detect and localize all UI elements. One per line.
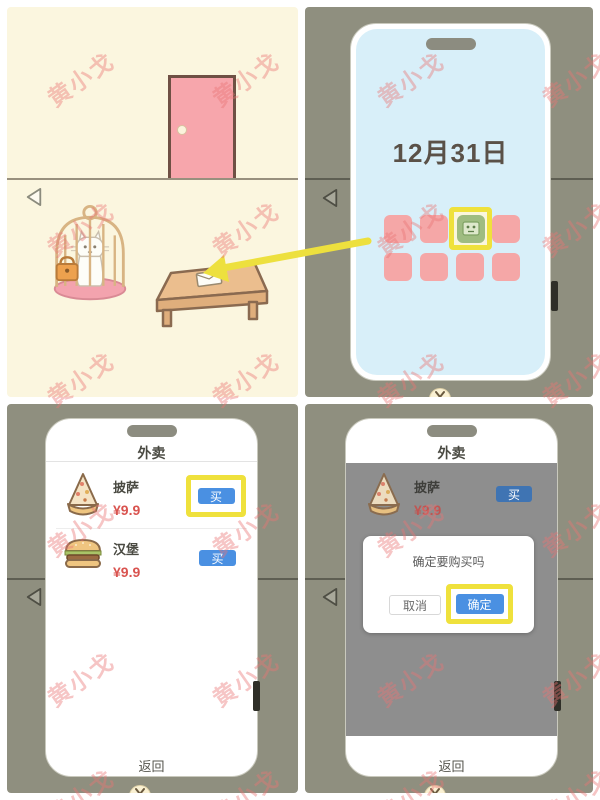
takeout-app-icon[interactable]	[457, 215, 485, 243]
note-icon[interactable]	[196, 270, 222, 286]
highlight-box	[449, 207, 492, 250]
chevron-down-icon	[427, 786, 443, 793]
table[interactable]	[143, 247, 295, 332]
buy-button[interactable]: 买	[496, 486, 532, 502]
phone-notch	[427, 425, 477, 437]
item-price: ¥9.9	[113, 502, 140, 518]
phone-side-button	[253, 681, 260, 711]
app-icon[interactable]	[384, 215, 412, 243]
phone: 12月31日	[350, 23, 551, 381]
app-icon[interactable]	[420, 253, 448, 281]
door-knob-icon	[177, 125, 187, 135]
confirm-button[interactable]: 确定	[456, 594, 504, 614]
dialog-message: 确定要购买吗	[363, 553, 534, 570]
chevron-down-icon	[132, 786, 148, 793]
highlight-box: 确定	[446, 584, 513, 624]
phone-side-button	[551, 281, 558, 311]
app-title: 外卖	[46, 443, 257, 463]
date-text: 12月31日	[356, 133, 545, 170]
item-name: 披萨	[414, 477, 440, 496]
burger-icon	[62, 536, 104, 570]
app-icon[interactable]	[456, 253, 484, 281]
app-icon[interactable]	[492, 253, 520, 281]
divider	[46, 461, 257, 462]
app-title: 外卖	[346, 443, 557, 463]
confirm-dialog: 确定要购买吗 取消 确定	[363, 536, 534, 633]
walkthrough-collage: 12月31日	[0, 0, 600, 800]
panel-shop: 外卖 披萨 ¥9.9 买 汉堡	[7, 404, 298, 793]
item-name: 披萨	[113, 477, 139, 496]
wall-floor-line	[7, 178, 298, 180]
app-icon[interactable]	[492, 215, 520, 243]
pull-down-handle[interactable]	[429, 388, 451, 397]
panel-confirm: 外卖 披萨 ¥9.9 买 确定要购买吗 取消 确定	[305, 404, 593, 793]
pull-down-handle[interactable]	[129, 785, 151, 793]
panel-room	[7, 7, 298, 397]
buy-button[interactable]: 买	[198, 488, 235, 504]
item-price: ¥9.9	[113, 564, 140, 580]
chevron-down-icon	[432, 389, 448, 397]
back-button[interactable]	[25, 587, 43, 607]
cancel-button[interactable]: 取消	[389, 595, 441, 615]
item-name: 汉堡	[113, 539, 139, 558]
phone-notch	[127, 425, 177, 437]
divider	[56, 528, 247, 529]
pull-down-handle[interactable]	[424, 785, 446, 793]
phone-notch	[426, 38, 476, 50]
phone-screen: 12月31日	[356, 29, 545, 375]
return-button[interactable]: 返回	[46, 756, 257, 775]
buy-button[interactable]: 买	[199, 550, 236, 566]
phone-side-button	[554, 681, 561, 711]
door[interactable]	[168, 75, 236, 178]
highlight-box: 买	[186, 475, 246, 517]
pizza-icon	[364, 471, 404, 517]
app-icon[interactable]	[384, 253, 412, 281]
back-button[interactable]	[321, 587, 339, 607]
lock-icon	[57, 257, 78, 280]
return-button[interactable]: 返回	[346, 756, 557, 775]
app-icon[interactable]	[420, 215, 448, 243]
phone: 外卖 披萨 ¥9.9 买 汉堡	[45, 418, 258, 777]
item-price: ¥9.9	[414, 502, 441, 518]
pizza-icon	[63, 471, 103, 517]
phone: 外卖 披萨 ¥9.9 买 确定要购买吗 取消 确定	[345, 418, 558, 777]
back-button[interactable]	[321, 188, 339, 208]
back-button[interactable]	[25, 187, 43, 207]
panel-phone-home: 12月31日	[305, 7, 593, 397]
caged-cat[interactable]	[47, 204, 133, 304]
